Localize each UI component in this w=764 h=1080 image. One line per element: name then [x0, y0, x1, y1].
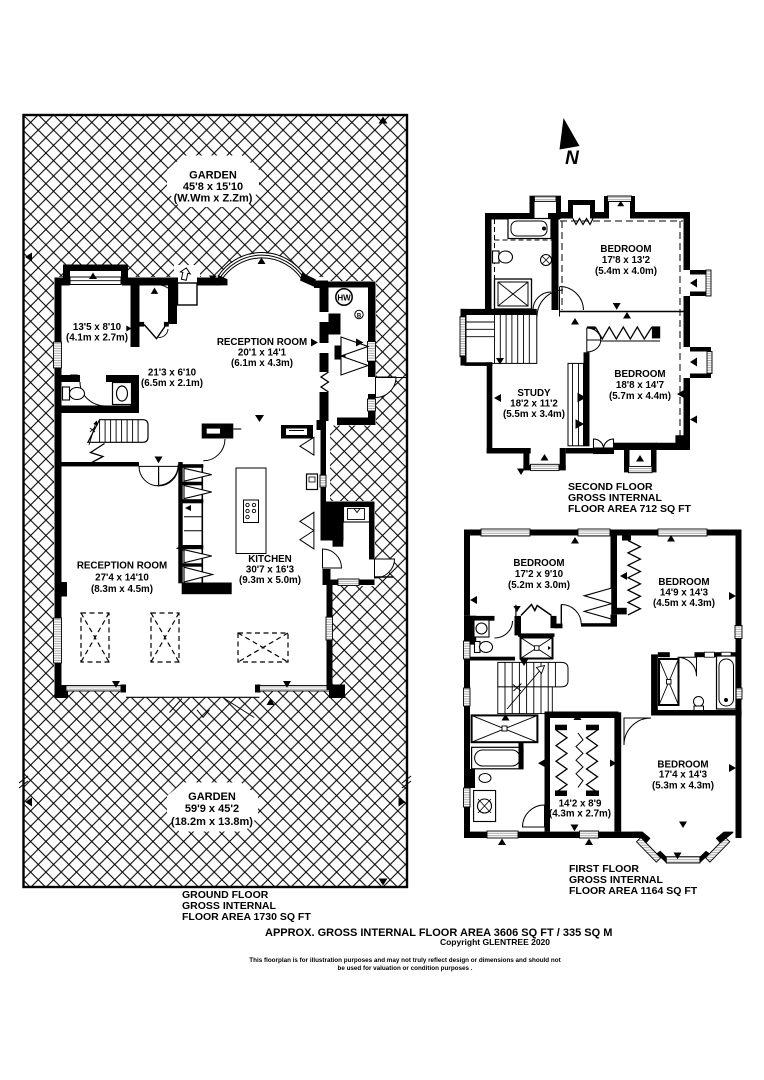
svg-text:(9.3m x 5.0m): (9.3m x 5.0m)	[239, 575, 301, 586]
svg-text:59'9 x 45'2: 59'9 x 45'2	[185, 803, 239, 815]
svg-text:20'1 x 14'1: 20'1 x 14'1	[238, 348, 287, 359]
svg-text:Copyright GLENTREE 2020: Copyright GLENTREE 2020	[440, 937, 550, 947]
svg-text:21'3 x 6'10: 21'3 x 6'10	[148, 368, 197, 379]
svg-text:18'2 x 11'2: 18'2 x 11'2	[510, 399, 558, 410]
svg-text:B: B	[357, 314, 362, 320]
svg-text:GARDEN: GARDEN	[189, 170, 237, 182]
svg-text:17'2 x 9'10: 17'2 x 9'10	[515, 569, 564, 580]
svg-text:17'4 x 14'3: 17'4 x 14'3	[659, 770, 708, 781]
svg-text:17'8 x 13'2: 17'8 x 13'2	[602, 255, 651, 266]
svg-text:(4.1m x 2.7m): (4.1m x 2.7m)	[66, 333, 128, 344]
svg-text:FLOOR AREA 1730 SQ FT: FLOOR AREA 1730 SQ FT	[182, 911, 311, 923]
svg-text:(5.4m x 4.0m): (5.4m x 4.0m)	[595, 266, 657, 277]
svg-text:14'9 x 14'3: 14'9 x 14'3	[660, 588, 709, 599]
svg-text:(5.3m x 4.3m): (5.3m x 4.3m)	[652, 781, 714, 792]
svg-text:STUDY: STUDY	[517, 388, 551, 399]
svg-text:30'7 x 16'3: 30'7 x 16'3	[246, 565, 295, 576]
svg-text:BEDROOM: BEDROOM	[600, 244, 651, 255]
svg-text:N: N	[565, 148, 580, 169]
svg-text:(W.Wm x Z.Zm): (W.Wm x Z.Zm)	[174, 193, 253, 205]
svg-text:(5.2m x 3.0m): (5.2m x 3.0m)	[508, 580, 570, 591]
svg-text:(5.5m x 3.4m): (5.5m x 3.4m)	[503, 409, 565, 420]
svg-text:BEDROOM: BEDROOM	[614, 369, 665, 380]
svg-text:HW: HW	[337, 294, 351, 303]
svg-text:BEDROOM: BEDROOM	[658, 577, 709, 588]
svg-text:13'5 x 8'10: 13'5 x 8'10	[73, 322, 122, 333]
svg-text:45'8 x 15'10: 45'8 x 15'10	[183, 181, 243, 193]
svg-text:(6.1m x 4.3m): (6.1m x 4.3m)	[231, 358, 293, 369]
svg-text:RECEPTION ROOM: RECEPTION ROOM	[77, 561, 167, 572]
svg-text:18'8 x 14'7: 18'8 x 14'7	[616, 380, 665, 391]
svg-text:APPROX. GROSS INTERNAL FLOOR A: APPROX. GROSS INTERNAL FLOOR AREA 3606 S…	[265, 927, 612, 939]
svg-text:(4.3m x 2.7m): (4.3m x 2.7m)	[549, 809, 611, 820]
svg-text:(4.5m x 4.3m): (4.5m x 4.3m)	[653, 598, 715, 609]
svg-text:KITCHEN: KITCHEN	[248, 554, 292, 565]
svg-text:BEDROOM: BEDROOM	[513, 558, 564, 569]
svg-text:FLOOR AREA 1164 SQ FT: FLOOR AREA 1164 SQ FT	[569, 885, 698, 897]
svg-text:(18.2m x 13.8m): (18.2m x 13.8m)	[171, 816, 253, 828]
svg-text:RECEPTION ROOM: RECEPTION ROOM	[217, 337, 307, 348]
svg-text:GARDEN: GARDEN	[188, 791, 236, 803]
svg-text:27'4 x 14'10: 27'4 x 14'10	[95, 573, 149, 584]
svg-text:FLOOR AREA 712 SQ FT: FLOOR AREA 712 SQ FT	[568, 503, 691, 515]
svg-text:This floorplan is for illustra: This floorplan is for illustration purpo…	[249, 957, 561, 964]
svg-text:(5.7m x 4.4m): (5.7m x 4.4m)	[609, 391, 671, 402]
svg-text:(6.5m x 2.1m): (6.5m x 2.1m)	[141, 378, 203, 389]
svg-text:(8.3m x 4.5m): (8.3m x 4.5m)	[91, 584, 153, 595]
svg-text:be used for valuation or condi: be used for valuation or condition purpo…	[337, 965, 472, 972]
